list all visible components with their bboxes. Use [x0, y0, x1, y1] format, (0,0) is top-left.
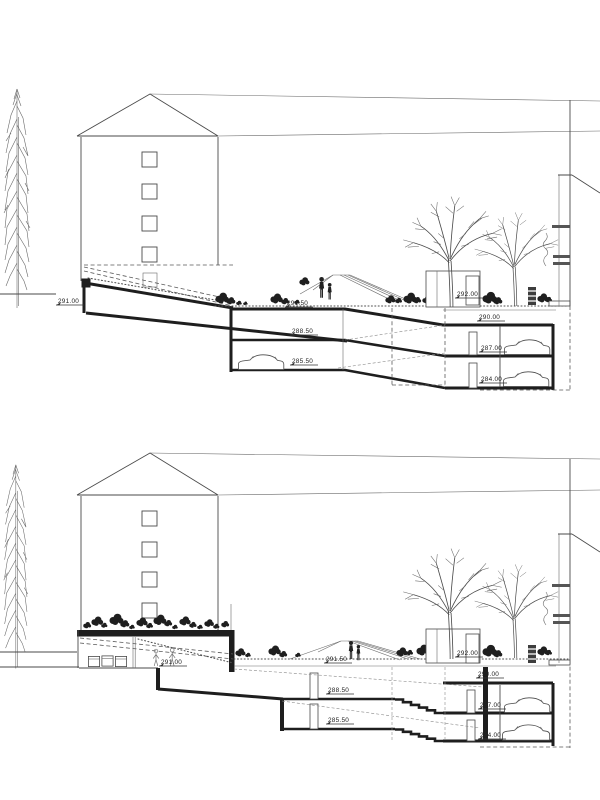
handwritten-note-squiggle	[543, 233, 548, 266]
green-roof-pavilion	[77, 614, 235, 672]
elevation-label-garage-mid-upper: 288.50	[292, 328, 313, 335]
elevation-label-terrace: 292.00	[457, 291, 478, 298]
roof-shrubs	[83, 614, 229, 629]
building-windows	[142, 511, 157, 618]
elevation-label-garage-mid-upper: 288.50	[328, 687, 349, 694]
elevation-label-courtyard: 291.50	[287, 300, 308, 307]
elevation-label-courtyard: 291.50	[326, 656, 347, 663]
parked-car	[505, 698, 550, 713]
elevation-label-terrace: 292.00	[457, 650, 478, 657]
storage-crates	[88, 656, 126, 667]
parked-car	[239, 355, 284, 370]
building-windows	[142, 152, 157, 287]
poplar-tree	[4, 465, 28, 669]
elevation-label-garage-right-middle: 287.00	[480, 702, 501, 709]
elevation-label-garage-right-middle: 287.00	[481, 345, 502, 352]
section-top: 291.00 291.50 288.50 285.50 292.00 290.0…	[0, 89, 600, 390]
elevation-label-garage-mid-lower: 285.50	[292, 358, 313, 365]
sections-drawing: 291.00 291.50 288.50 285.50 292.00 290.0…	[0, 0, 600, 800]
elevation-label-garage-right-upper: 290.00	[479, 314, 500, 321]
parked-car	[503, 725, 550, 740]
elevation-label-garage-right-lower: 284.00	[480, 732, 501, 739]
elevation-label-street: 291.00	[58, 298, 79, 305]
section-bottom: 291.00 291.50 288.50 285.50 292.00 290.0…	[0, 453, 600, 748]
terrace-wall	[426, 629, 570, 665]
striped-post	[528, 645, 536, 663]
courtyard-ground	[235, 641, 552, 660]
scanned-section-drawing-page: 291.00 291.50 288.50 285.50 292.00 290.0…	[0, 0, 600, 800]
people-on-mound	[349, 641, 360, 660]
underground-garage-stairs-variant	[156, 659, 572, 748]
poplar-tree	[4, 89, 30, 308]
striped-post	[528, 287, 536, 305]
main-building	[77, 94, 600, 287]
parked-car	[505, 340, 550, 355]
street-lines	[0, 652, 79, 667]
neighbor-building-edge	[543, 459, 600, 663]
elevation-label-garage-right-upper: 290.00	[478, 671, 499, 678]
underground-garage-ramp-variant	[82, 265, 573, 390]
courtyard-ground	[215, 275, 568, 306]
elevation-label-garage-mid-lower: 285.50	[328, 717, 349, 724]
elevation-label-garage-right-lower: 284.00	[481, 376, 502, 383]
parked-car	[504, 372, 549, 387]
elevation-label-entrance: 291.00	[161, 659, 182, 666]
